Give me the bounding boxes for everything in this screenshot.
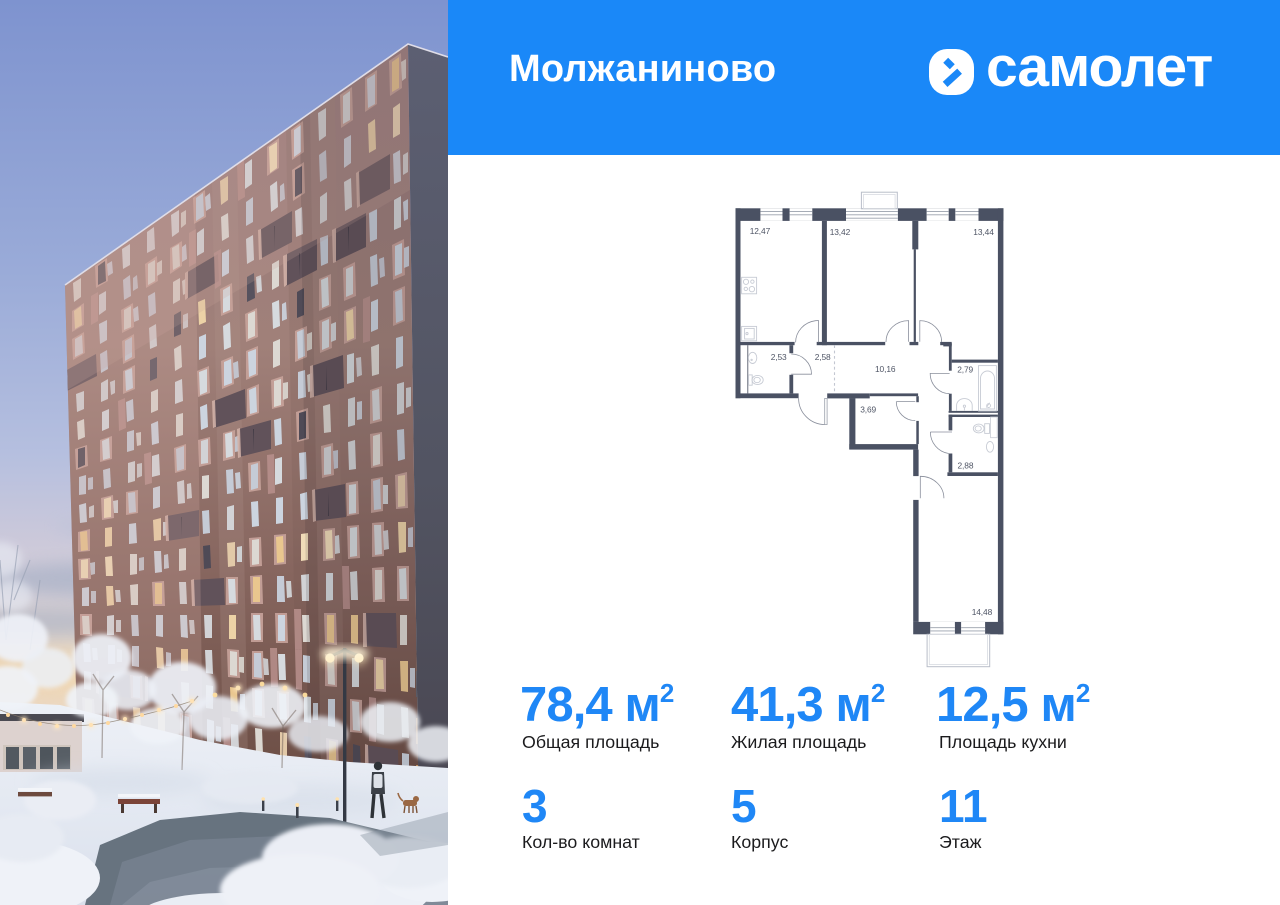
svg-text:13,42: 13,42	[830, 227, 851, 237]
svg-text:3,69: 3,69	[860, 405, 876, 415]
svg-text:12,47: 12,47	[750, 226, 771, 236]
svg-text:2,58: 2,58	[815, 352, 831, 362]
svg-text:13,44: 13,44	[973, 227, 994, 237]
svg-text:2,53: 2,53	[771, 352, 787, 362]
svg-text:10,16: 10,16	[875, 364, 896, 374]
svg-text:2,88: 2,88	[958, 460, 974, 470]
svg-text:14,48: 14,48	[972, 607, 993, 617]
svg-text:2,79: 2,79	[957, 365, 973, 375]
